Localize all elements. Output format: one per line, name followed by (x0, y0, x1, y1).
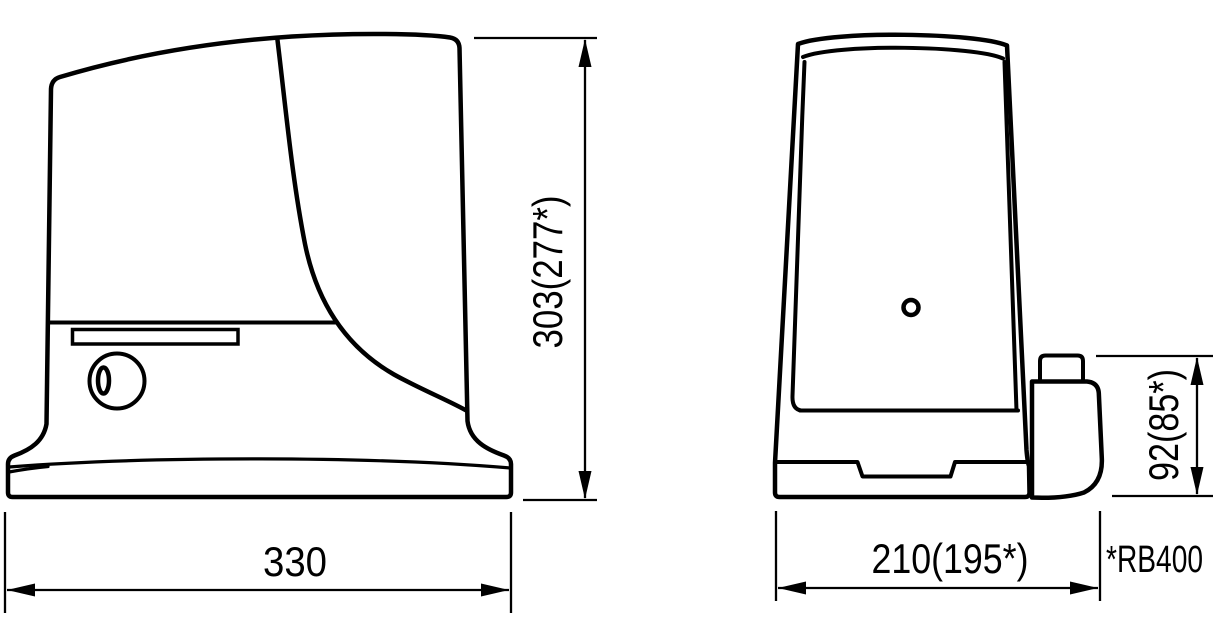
width-dimension-label: 330 (263, 538, 327, 585)
release-slot (73, 330, 239, 345)
arrowhead-left (778, 582, 806, 595)
arrowhead-down (579, 471, 592, 499)
pinion-housing (1032, 382, 1102, 498)
drawing-canvas: 303(277*) 330 210(195*) 92(85 (0, 0, 1214, 623)
height-dimension: 303(277*) (474, 38, 597, 500)
screw-hole (904, 300, 919, 315)
pinion-height-dimension-label: 92(85*) (1140, 369, 1187, 481)
model-footnote: *RB400 (1106, 539, 1203, 581)
arrowhead-right (481, 584, 509, 597)
motor-body-outline (8, 34, 511, 497)
release-keyhole-slot (98, 368, 109, 394)
depth-dimension-label: 210(195*) (872, 535, 1029, 582)
height-dimension-label: 303(277*) (524, 196, 571, 349)
width-dimension: 330 (5, 512, 511, 613)
gate-motor-dimension-drawing: 303(277*) 330 210(195*) 92(85 (0, 0, 1214, 623)
pinion-cover (1040, 356, 1083, 382)
motor-front-outline (775, 35, 1030, 497)
arrowhead-up (1191, 357, 1204, 385)
arrowhead-right (1070, 582, 1098, 595)
arrowhead-left (7, 584, 35, 597)
arrowhead-up (579, 39, 592, 67)
front-view (775, 35, 1102, 498)
side-view (8, 34, 511, 497)
pinion-height-dimension: 92(85*) (1096, 356, 1213, 496)
depth-dimension: 210(195*) (776, 511, 1100, 601)
arrowhead-down (1191, 467, 1204, 495)
